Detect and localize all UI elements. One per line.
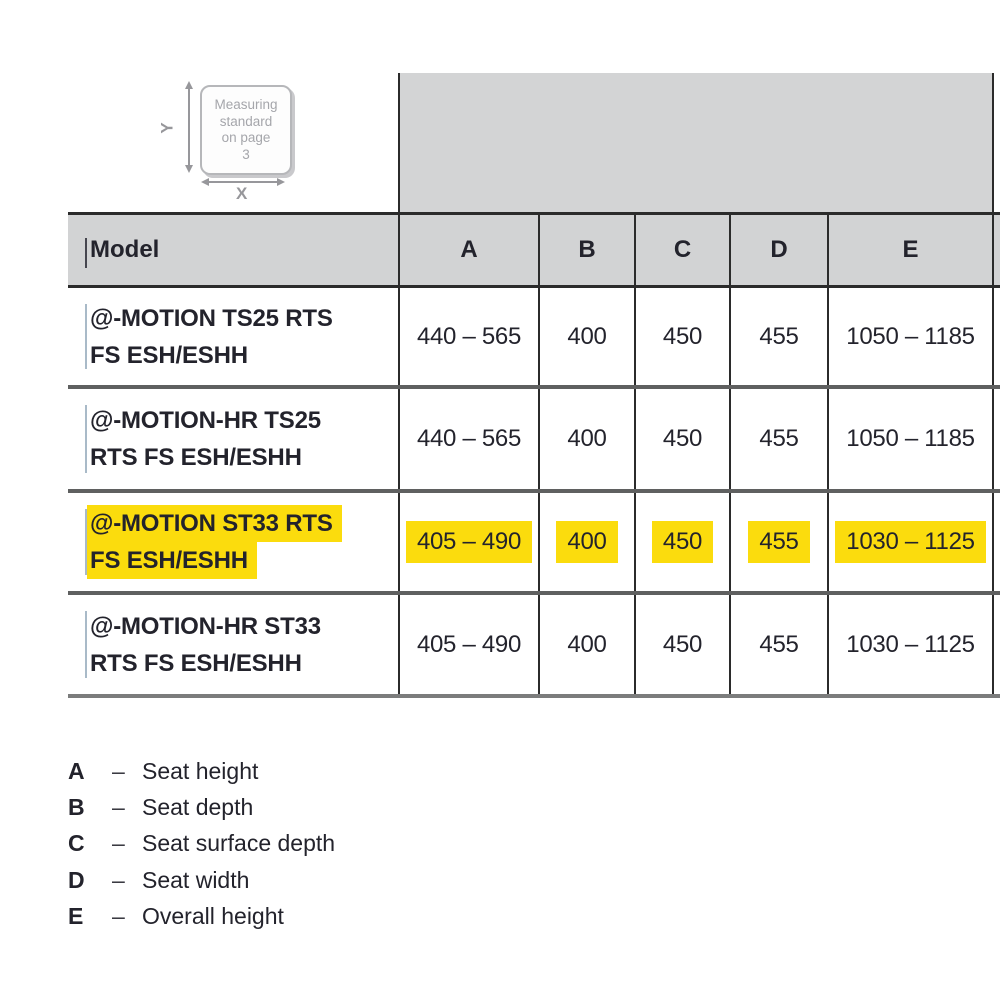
value-cell-a: 405 – 490 xyxy=(400,595,540,694)
header-cell-d: D xyxy=(731,215,829,285)
legend-label: Seat width xyxy=(142,867,249,894)
spec-table: Model A B C D E @-MOTION TS25 RTS FS ESH… xyxy=(68,212,1000,698)
legend-label: Overall height xyxy=(142,903,284,930)
table-header-row: Model A B C D E xyxy=(68,212,1000,288)
value-cell-c: 450 xyxy=(636,595,731,694)
legend-dash: – xyxy=(112,830,142,857)
value-cell-a: 440 – 565 xyxy=(400,288,540,385)
legend-key: E xyxy=(68,903,112,930)
legend-item: A – Seat height xyxy=(68,753,335,789)
value-cell-b: 400 xyxy=(540,288,636,385)
dimension-legend: A – Seat height B – Seat depth C – Seat … xyxy=(68,753,335,935)
legend-item: D – Seat width xyxy=(68,862,335,898)
value-cell-e: 1050 – 1185 xyxy=(829,288,994,385)
value-cell-e: 1030 – 1125 xyxy=(829,595,994,694)
value-cell-overflow xyxy=(994,389,1000,489)
legend-dash: – xyxy=(112,758,142,785)
model-cell: @-MOTION-HR TS25 RTS FS ESH/ESHH xyxy=(68,389,400,489)
model-name-line: FS ESH/ESHH xyxy=(87,337,257,374)
legend-item: E – Overall height xyxy=(68,899,335,935)
table-row-highlighted: @-MOTION ST33 RTS FS ESH/ESHH 405 – 490 … xyxy=(68,493,1000,595)
value-cell-d: 455 xyxy=(731,288,829,385)
badge-line: on page xyxy=(222,130,271,147)
legend-key: B xyxy=(68,794,112,821)
model-name-line: RTS FS ESH/ESHH xyxy=(87,645,311,682)
value-cell-b: 400 xyxy=(540,389,636,489)
value-cell-overflow xyxy=(994,288,1000,385)
value-cell-c: 450 xyxy=(636,288,731,385)
value-cell-e: 1050 – 1185 xyxy=(829,389,994,489)
y-axis-label: Y xyxy=(158,122,178,133)
value-cell-d: 455 xyxy=(731,595,829,694)
value-cell-c: 450 xyxy=(636,389,731,489)
measuring-standard-badge: Measuring standard on page 3 xyxy=(200,85,292,175)
document-page: Y Measuring standard on page 3 X Model A… xyxy=(0,0,1000,992)
model-name-line: @-MOTION ST33 RTS xyxy=(87,505,342,542)
model-name-line: FS ESH/ESHH xyxy=(87,542,257,579)
legend-dash: – xyxy=(112,903,142,930)
legend-dash: – xyxy=(112,867,142,894)
model-cell: @-MOTION TS25 RTS FS ESH/ESHH xyxy=(68,288,400,385)
legend-key: C xyxy=(68,830,112,857)
model-name-line: @-MOTION TS25 RTS xyxy=(87,300,342,337)
model-name-line: @-MOTION-HR TS25 xyxy=(87,402,330,439)
value-cell-b: 400 xyxy=(540,493,636,591)
value-cell-e: 1030 – 1125 xyxy=(829,493,994,591)
value-cell-b: 400 xyxy=(540,595,636,694)
value-cell-a: 405 – 490 xyxy=(400,493,540,591)
value-cell-d: 455 xyxy=(731,389,829,489)
value-cell-d: 455 xyxy=(731,493,829,591)
header-cell-a: A xyxy=(400,215,540,285)
y-dimension-arrow-icon xyxy=(188,88,190,166)
header-cell-c: C xyxy=(636,215,731,285)
value-cell-overflow xyxy=(994,595,1000,694)
model-name-line: @-MOTION-HR ST33 xyxy=(87,608,330,645)
value-cell-overflow xyxy=(994,493,1000,591)
table-row: @-MOTION-HR TS25 RTS FS ESH/ESHH 440 – 5… xyxy=(68,389,1000,493)
x-dimension-arrow-icon xyxy=(208,181,278,183)
value-cell-a: 440 – 565 xyxy=(400,389,540,489)
product-image-placeholder xyxy=(398,73,994,212)
badge-line: 3 xyxy=(242,147,250,164)
header-cell-b: B xyxy=(540,215,636,285)
legend-label: Seat height xyxy=(142,758,258,785)
table-row: @-MOTION-HR ST33 RTS FS ESH/ESHH 405 – 4… xyxy=(68,595,1000,698)
model-name-line: RTS FS ESH/ESHH xyxy=(87,439,311,476)
x-axis-label: X xyxy=(236,184,247,204)
legend-label: Seat depth xyxy=(142,794,253,821)
legend-key: D xyxy=(68,867,112,894)
legend-key: A xyxy=(68,758,112,785)
model-cell: @-MOTION ST33 RTS FS ESH/ESHH xyxy=(68,493,400,591)
legend-dash: – xyxy=(112,794,142,821)
badge-line: standard xyxy=(220,114,273,131)
header-cell-model: Model xyxy=(68,215,400,285)
model-cell: @-MOTION-HR ST33 RTS FS ESH/ESHH xyxy=(68,595,400,694)
header-cell-overflow xyxy=(994,215,1000,285)
table-row: @-MOTION TS25 RTS FS ESH/ESHH 440 – 565 … xyxy=(68,288,1000,389)
legend-item: C – Seat surface depth xyxy=(68,826,335,862)
legend-label: Seat surface depth xyxy=(142,830,335,857)
value-cell-c: 450 xyxy=(636,493,731,591)
header-cell-e: E xyxy=(829,215,994,285)
legend-item: B – Seat depth xyxy=(68,789,335,825)
badge-line: Measuring xyxy=(214,97,277,114)
